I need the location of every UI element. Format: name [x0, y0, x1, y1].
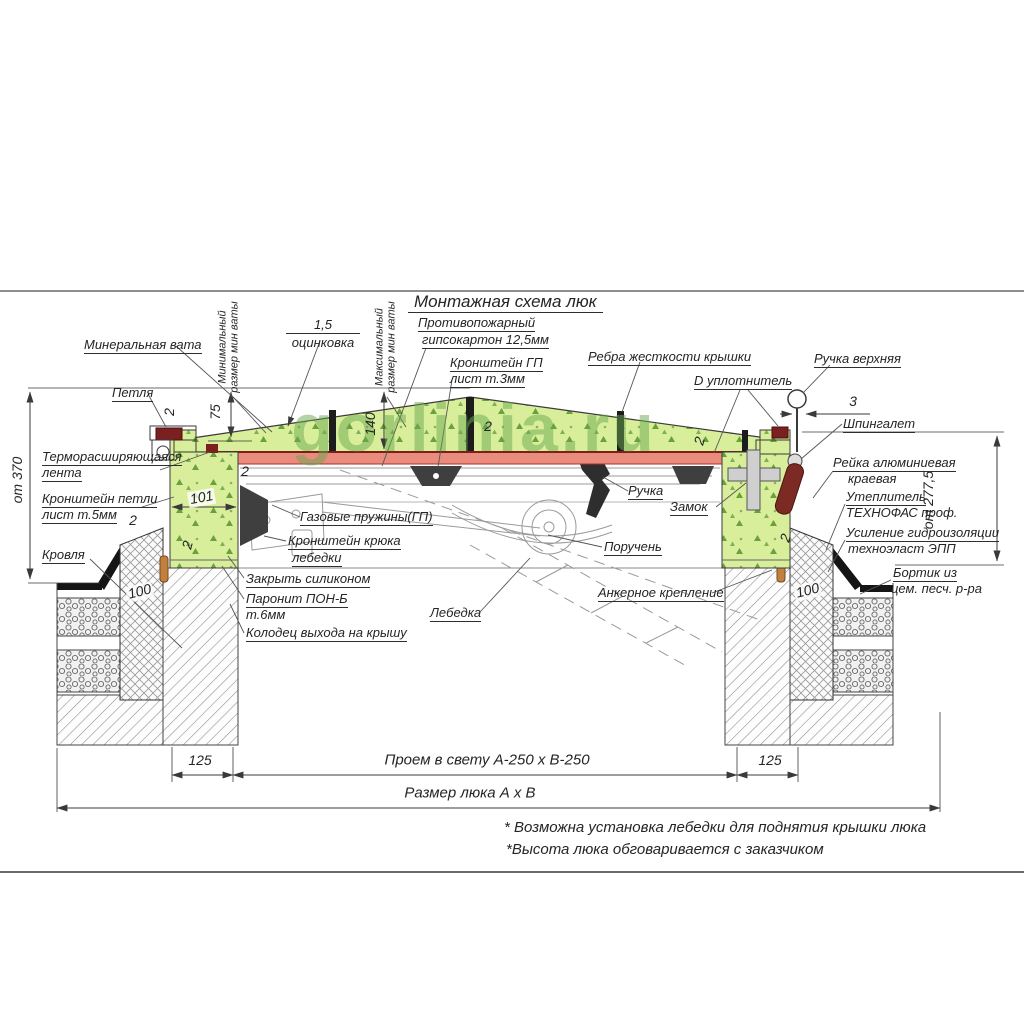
- label-hook-bracket-2: лебедки: [292, 551, 342, 567]
- label-max-wool-size: Максимальный размер мин ваты: [374, 301, 399, 392]
- frame-gusset-left: [240, 485, 268, 546]
- label-lid-ribs: Ребра жесткости крышки: [588, 350, 751, 366]
- dim-opening: Проем в свету А-250 х В-250: [384, 753, 589, 770]
- note-winch-option: * Возможна установка лебедки для подняти…: [504, 820, 926, 837]
- label-waterproofing-2: техноэласт ЭПП: [848, 542, 956, 557]
- label-alu-rail-1: Рейка алюминиевая: [833, 456, 956, 472]
- note-height-agreement: *Высота люка обговаривается с заказчиком: [506, 842, 824, 859]
- dim-hatch-size: Размер люка А х В: [404, 786, 535, 803]
- label-gp-bracket-1: Кронштейн ГП: [450, 356, 543, 372]
- dim-75: 75: [208, 404, 224, 420]
- label-paronite-2: т.6мм: [246, 608, 285, 623]
- label-thermo-tape-1: Терморасширяющаяся: [42, 450, 182, 466]
- label-silicone: Закрыть силиконом: [246, 572, 370, 588]
- label-waterproofing-1: Усиление гидроизоляции: [846, 526, 999, 542]
- dim-140: 140: [363, 412, 379, 435]
- label-top-handle: Ручка верхняя: [814, 352, 901, 368]
- label-latch: Шпингалет: [843, 417, 915, 433]
- label-fireproof-board-1: Противопожарный: [418, 316, 535, 332]
- dim-height-370: от 370: [10, 457, 26, 504]
- thickness-2-frame-left: 2: [241, 464, 249, 480]
- dim-125-right: 125: [756, 753, 783, 769]
- label-handle: Ручка: [628, 484, 663, 500]
- label-hook-bracket-1: Кронштейн крюка: [288, 534, 401, 550]
- label-zinc: оцинковка: [286, 336, 360, 351]
- label-roof-well: Колодец выхода на крышу: [246, 626, 407, 642]
- gp-bracket-hole: [433, 473, 439, 479]
- thickness-2-lid: 2: [484, 419, 492, 435]
- label-hinge-bracket-2: лист т.5мм: [42, 508, 117, 524]
- watermark: gorlinia.ru: [291, 389, 656, 467]
- label-alu-rail-2: краевая: [848, 472, 897, 487]
- label-gp-bracket-2: лист т.3мм: [450, 372, 525, 388]
- schematic-page: gorlinia.ru Монтажная схема люк Противоп…: [0, 0, 1024, 1024]
- dim-3: 3: [849, 394, 857, 410]
- label-seal: D уплотнитель: [694, 374, 792, 390]
- anchor-pin-left: [160, 556, 168, 582]
- label-anchor: Анкерное крепление: [598, 586, 724, 602]
- label-mineral-wool: Минеральная вата: [84, 338, 202, 354]
- label-thermo-tape-2: лента: [42, 466, 82, 482]
- label-fireproof-board-2: гипсокартон 12,5мм: [422, 333, 549, 349]
- label-insulation-1: Утеплитель: [846, 490, 926, 506]
- label-min-wool-size: Минимальный размер мин ваты: [217, 301, 242, 392]
- label-curb-1: Бортик из: [893, 566, 957, 582]
- label-lock: Замок: [670, 500, 708, 516]
- label-roof: Кровля: [42, 548, 85, 564]
- label-handrail: Поручень: [604, 540, 662, 556]
- label-insulation-2: ТЕХНОФАС проф.: [846, 506, 957, 521]
- label-zinc-thickness: 1,5: [286, 318, 360, 334]
- label-hinge: Петля: [112, 386, 153, 402]
- dim-125-left: 125: [186, 753, 213, 769]
- gp-bracket-shape-right: [672, 466, 714, 484]
- label-winch: Лебедка: [430, 606, 481, 622]
- label-paronite-1: Паронит ПОН-Б: [246, 592, 348, 608]
- thickness-2-hinge: 2: [162, 408, 178, 416]
- thickness-2-bracket: 2: [129, 513, 137, 529]
- label-gas-springs: Газовые пружины(ГП): [300, 510, 433, 526]
- label-curb-2: цем. песч. р-ра: [891, 582, 982, 597]
- label-hinge-bracket-1: Кронштейн петли: [42, 492, 157, 508]
- drawing-title: Монтажная схема люк: [408, 292, 603, 313]
